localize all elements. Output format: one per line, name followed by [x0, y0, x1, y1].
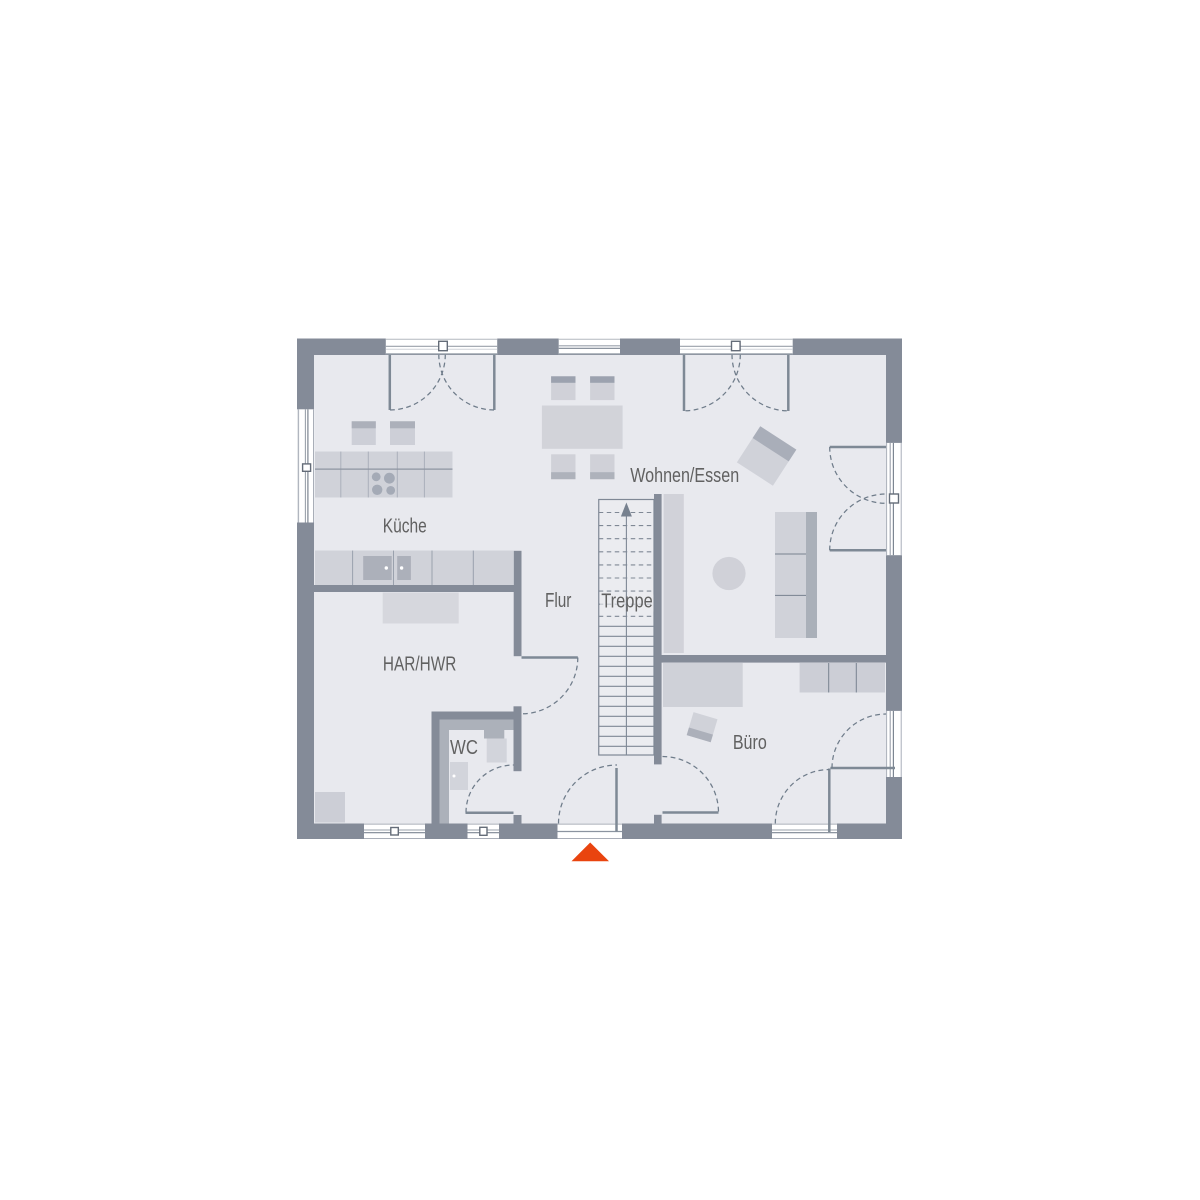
svg-text:Küche: Küche — [383, 516, 427, 538]
svg-text:Treppe: Treppe — [601, 590, 653, 612]
svg-text:Büro: Büro — [733, 732, 767, 754]
svg-text:WC: WC — [450, 737, 478, 759]
svg-text:Wohnen/Essen: Wohnen/Essen — [630, 465, 739, 487]
svg-text:HAR/HWR: HAR/HWR — [383, 654, 456, 676]
svg-text:Flur: Flur — [545, 590, 572, 612]
